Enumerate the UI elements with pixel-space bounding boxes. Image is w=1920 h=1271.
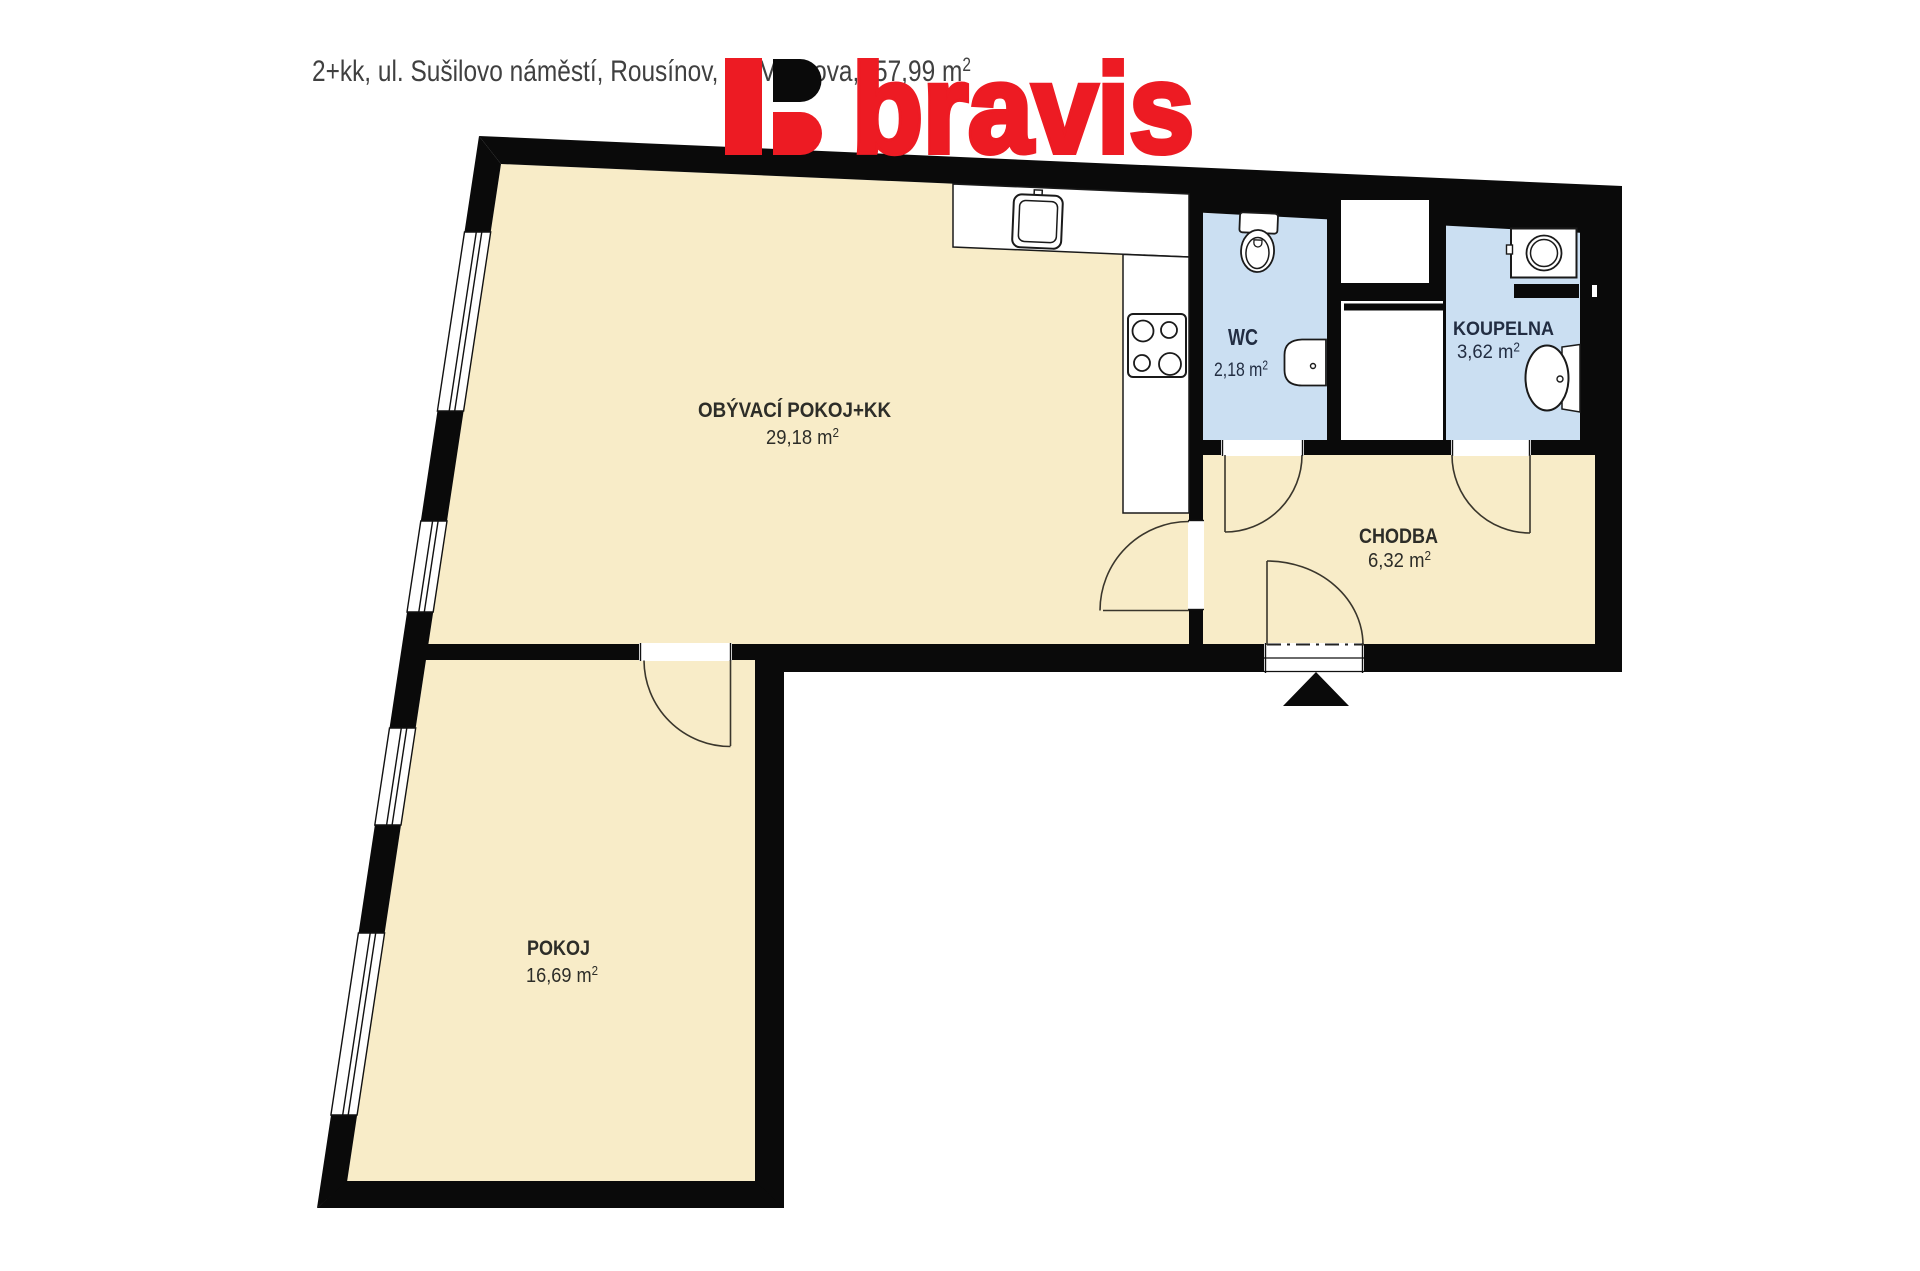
svg-text:WC: WC <box>1228 324 1258 350</box>
svg-text:3,62 m2: 3,62 m2 <box>1457 341 1520 364</box>
svg-text:POKOJ: POKOJ <box>527 936 590 960</box>
svg-text:bravis: bravis <box>852 40 1194 179</box>
svg-text:OBÝVACÍ POKOJ+KK: OBÝVACÍ POKOJ+KK <box>698 397 891 422</box>
svg-text:2,18 m2: 2,18 m2 <box>1214 359 1268 382</box>
svg-text:KOUPELNA: KOUPELNA <box>1453 318 1554 340</box>
svg-text:16,69 m2: 16,69 m2 <box>526 963 598 987</box>
svg-text:29,18 m2: 29,18 m2 <box>766 425 839 449</box>
svg-text:2+kk, ul. Sušilovo náměstí, Ro: 2+kk, ul. Sušilovo náměstí, Rousínov, <box>312 54 718 88</box>
svg-text:6,32 m2: 6,32 m2 <box>1368 548 1431 572</box>
svg-text:CHODBA: CHODBA <box>1359 524 1438 548</box>
